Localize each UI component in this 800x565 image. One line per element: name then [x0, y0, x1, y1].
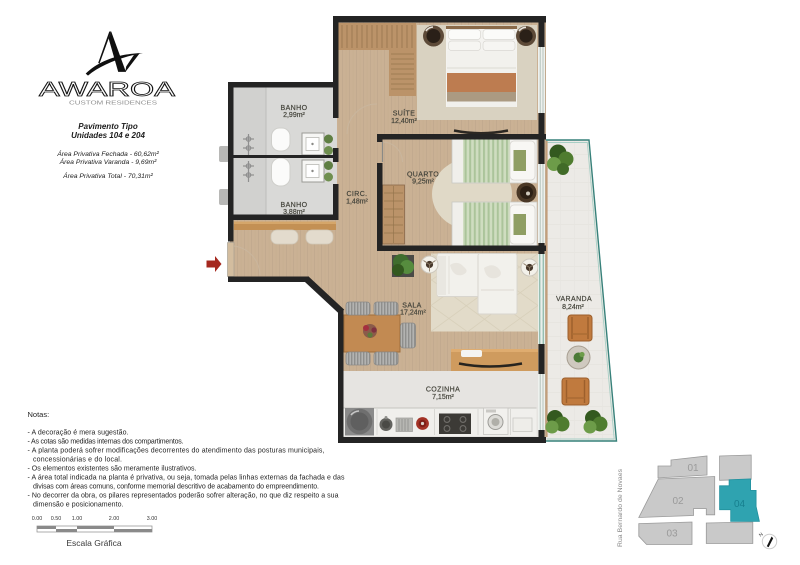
svg-text:9,25m²: 9,25m²: [412, 179, 434, 186]
svg-text:- A planta poderá sofrer modif: - A planta poderá sofrer modificações de…: [28, 448, 325, 455]
svg-text:Rua Bernardo de Novaes: Rua Bernardo de Novaes: [617, 468, 624, 547]
svg-text:- No decorrer da obra, os pila: - No decorrer da obra, os pilares repres…: [28, 493, 339, 500]
svg-text:SUÍTE: SUÍTE: [393, 109, 416, 118]
svg-text:Área Privativa Fechada - 60,62: Área Privativa Fechada - 60,62m²: [56, 149, 159, 158]
svg-text:VARANDA: VARANDA: [556, 296, 592, 303]
svg-text:17,24m²: 17,24m²: [400, 310, 426, 317]
svg-text:AWAROA: AWAROA: [39, 78, 175, 101]
svg-text:COZINHA: COZINHA: [426, 387, 460, 394]
svg-text:02: 02: [672, 496, 684, 507]
svg-text:SALA: SALA: [402, 303, 422, 310]
svg-text:- A área total indicada na pla: - A área total indicada na planta é priv…: [28, 475, 346, 482]
svg-text:0.00: 0.00: [32, 516, 43, 522]
svg-text:04: 04: [734, 499, 746, 510]
svg-text:Notas:: Notas:: [28, 410, 50, 419]
svg-text:3.00: 3.00: [147, 516, 158, 522]
svg-text:Escala Gráfica: Escala Gráfica: [66, 538, 122, 548]
svg-text:BANHO: BANHO: [281, 105, 308, 112]
svg-text:Área Privativa Total - 70,31m²: Área Privativa Total - 70,31m²: [62, 171, 153, 180]
svg-text:- As cotas são medidas interna: - As cotas são medidas internas dos comp…: [28, 439, 184, 446]
svg-text:03: 03: [666, 529, 678, 540]
svg-text:2.00: 2.00: [109, 516, 120, 522]
svg-text:dimensão e posicionamento.: dimensão e posicionamento.: [33, 502, 124, 509]
svg-text:Área Privativa Varanda - 9,69m: Área Privativa Varanda - 9,69m²: [59, 157, 158, 166]
svg-text:CIRC.: CIRC.: [346, 191, 367, 198]
svg-text:QUARTO: QUARTO: [407, 172, 439, 179]
svg-text:2,99m²: 2,99m²: [283, 112, 305, 119]
svg-text:01: 01: [687, 463, 699, 474]
svg-text:- Os elementos existentes são: - Os elementos existentes são meramente …: [28, 466, 197, 473]
svg-text:1.00: 1.00: [72, 516, 83, 522]
svg-text:12,40m²: 12,40m²: [391, 118, 417, 125]
svg-text:- A decoração é mera sugestão.: - A decoração é mera sugestão.: [28, 430, 129, 437]
svg-text:8,24m²: 8,24m²: [562, 304, 584, 311]
svg-text:BANHO: BANHO: [281, 202, 308, 209]
svg-text:concessionárias e do local.: concessionárias e do local.: [33, 457, 122, 464]
svg-text:1,48m²: 1,48m²: [346, 199, 368, 206]
svg-text:Unidades 104 e 204: Unidades 104 e 204: [71, 131, 145, 140]
svg-text:0.50: 0.50: [51, 516, 62, 522]
svg-text:Pavimento Tipo: Pavimento Tipo: [78, 122, 138, 131]
svg-text:CUSTOM RESIDENCES: CUSTOM RESIDENCES: [69, 101, 157, 107]
svg-text:3,88m²: 3,88m²: [283, 209, 305, 216]
svg-text:divisas com áreas comuns, conf: divisas com áreas comuns, conforme memor…: [33, 484, 319, 491]
svg-text:7,15m²: 7,15m²: [432, 394, 454, 401]
